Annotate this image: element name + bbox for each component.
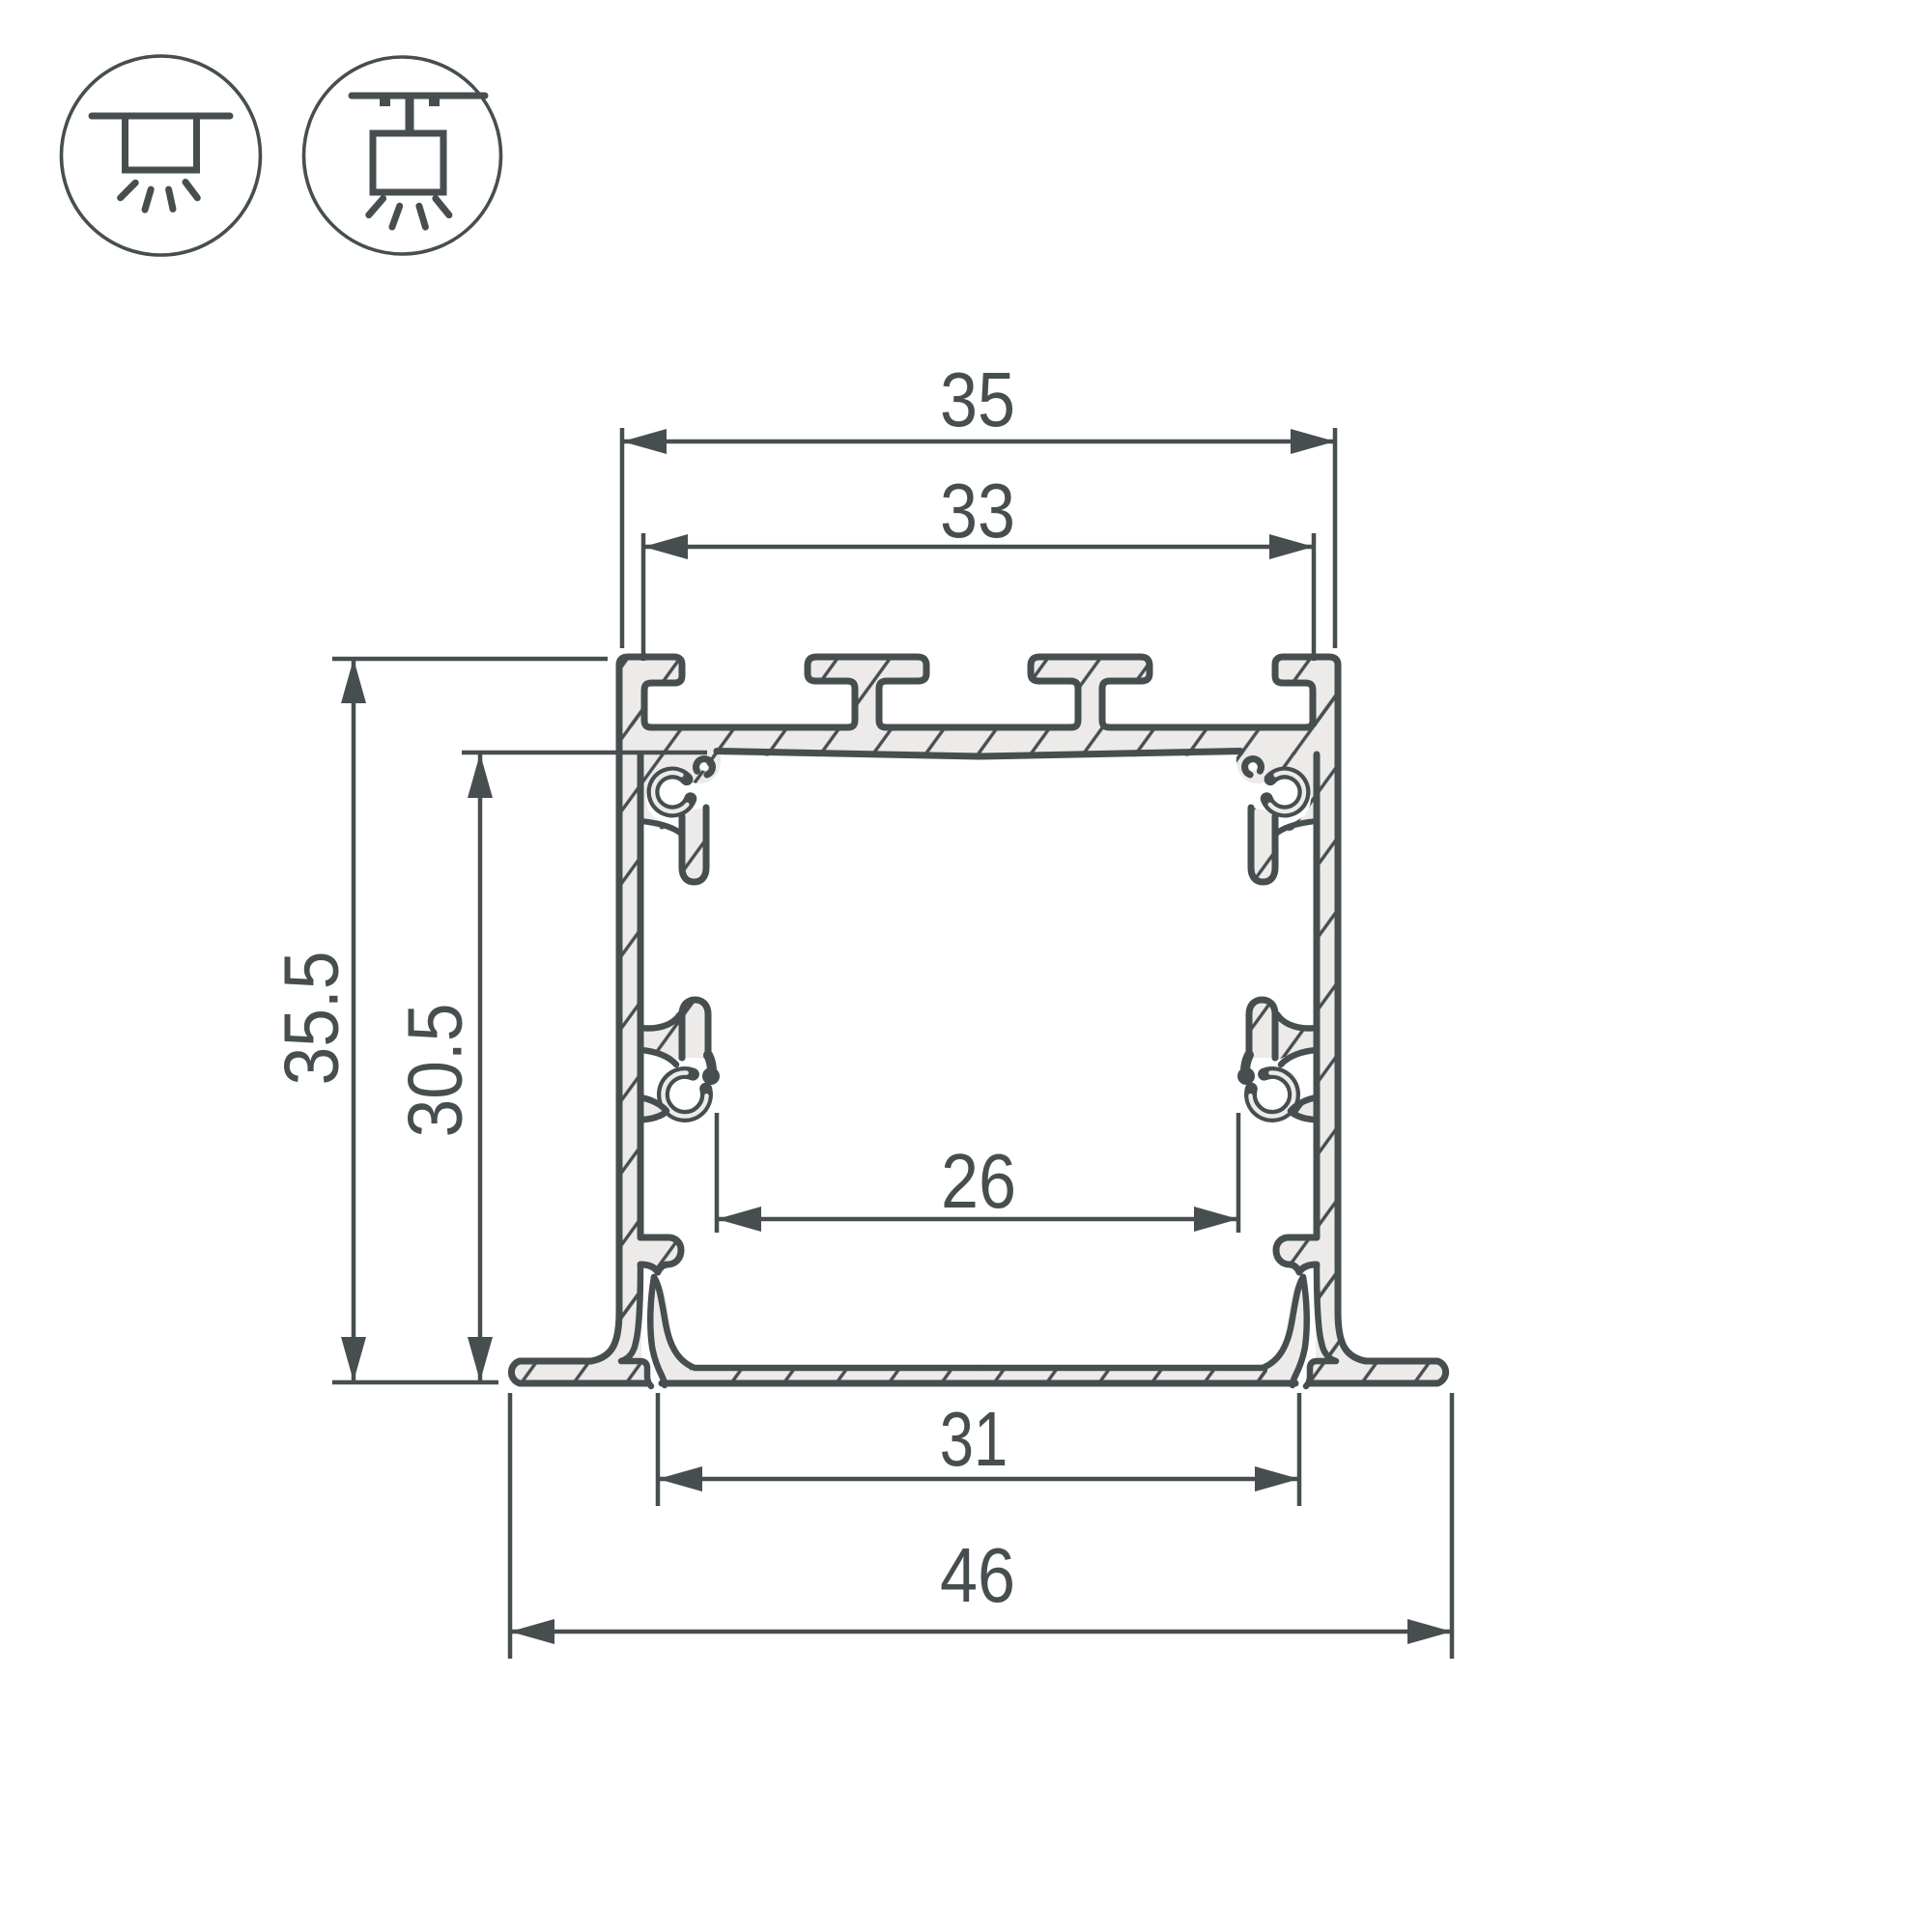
svg-text:30.5: 30.5	[392, 1004, 478, 1138]
svg-text:46: 46	[940, 1532, 1015, 1618]
svg-text:31: 31	[940, 1396, 1009, 1482]
svg-text:33: 33	[940, 468, 1015, 554]
svg-text:35: 35	[940, 356, 1015, 442]
svg-text:35.5: 35.5	[269, 952, 355, 1086]
svg-text:26: 26	[941, 1138, 1016, 1224]
